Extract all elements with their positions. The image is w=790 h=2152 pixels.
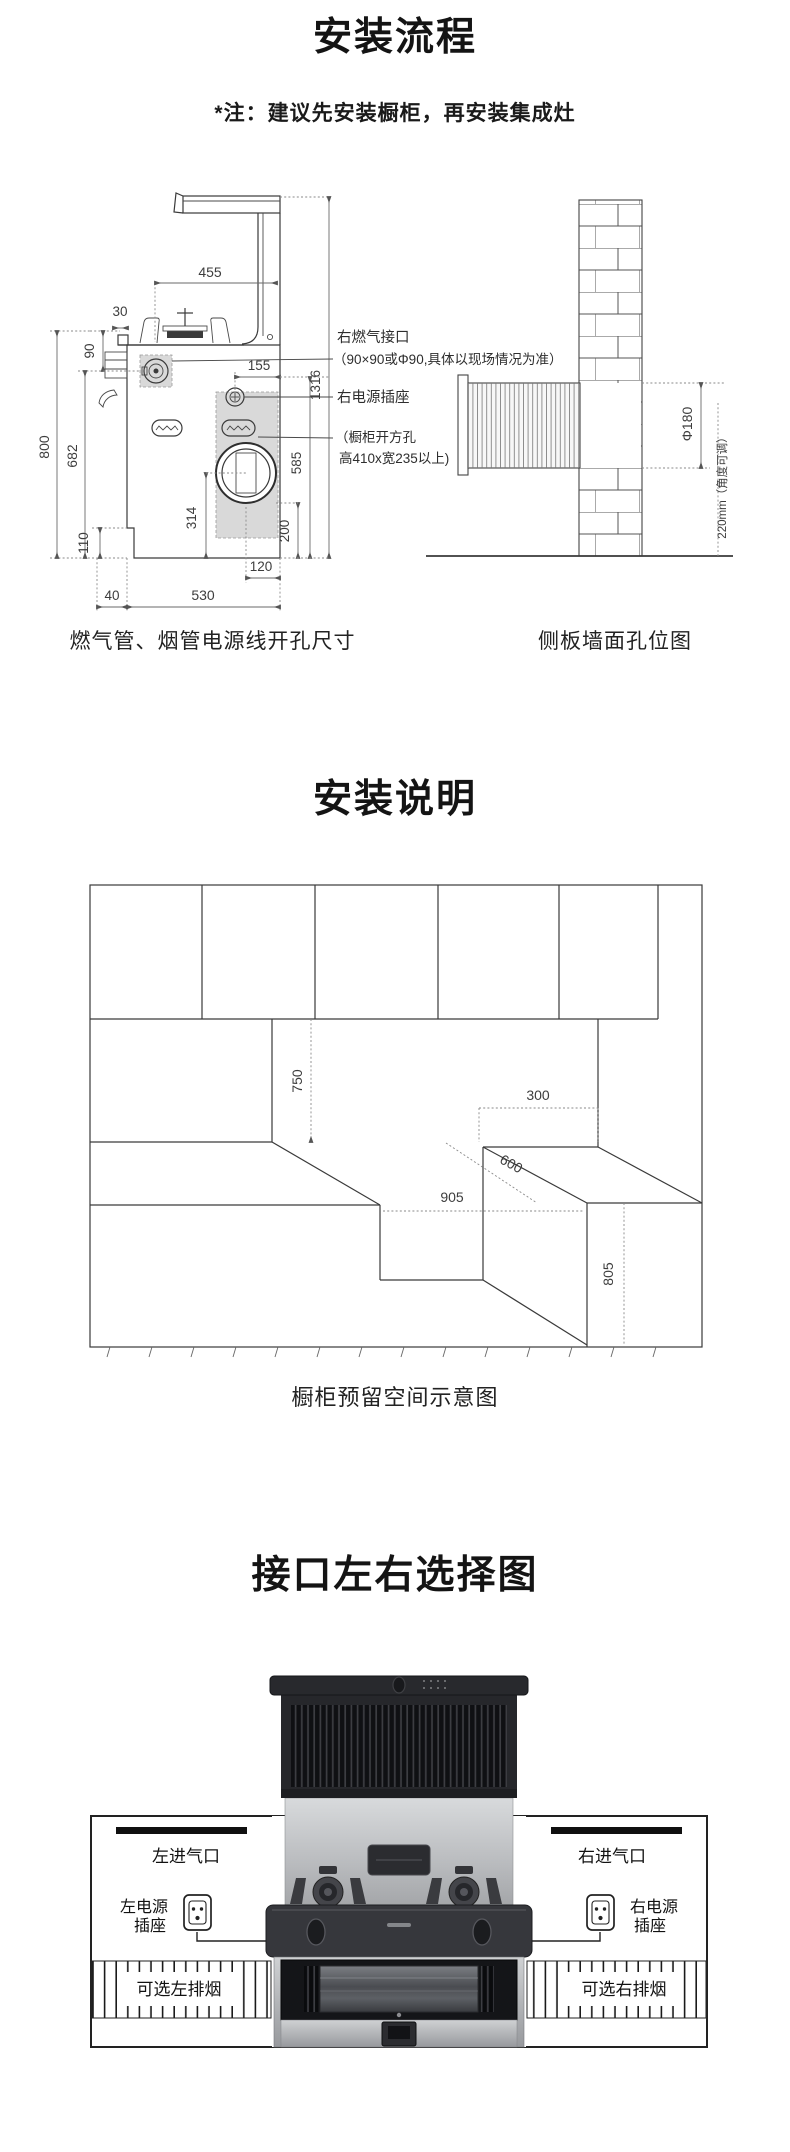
dim-800: 800 — [36, 435, 52, 459]
oven-window — [320, 1966, 478, 2012]
left-power-label-2: 插座 — [134, 1917, 166, 1935]
dim-455: 455 — [198, 264, 222, 280]
gas-inlet — [140, 355, 172, 387]
dim-750: 750 — [289, 1069, 305, 1093]
section-title-install-process: 安装流程 — [0, 6, 790, 62]
right-power-label-1: 右电源 — [630, 1898, 678, 1916]
dim-155: 155 — [248, 358, 271, 373]
flexible-duct — [458, 375, 580, 475]
manual-page: 安装流程 *注：建议先安装橱柜，再安装集成灶 — [0, 0, 790, 2152]
service-panel — [216, 388, 278, 538]
dim-220mm: 220mm（角度可调） — [715, 431, 729, 538]
left-exhaust-label: 可选左排烟 — [137, 1980, 222, 1999]
floor-ticks — [107, 1347, 656, 1357]
callout-power-socket: 右电源插座 — [337, 389, 410, 406]
caption-cabinet-space: 橱柜预留空间示意图 — [0, 1380, 790, 1412]
callout-cabinet-cutout-1: （橱柜开方孔 — [335, 430, 416, 445]
cabinet-dimension-lines — [311, 1019, 624, 1345]
right-knob — [473, 1919, 491, 1945]
fig-cabinet-space: 750 300 600 905 805 — [85, 880, 710, 1370]
dim-phi180: Φ180 — [679, 407, 695, 442]
oven-front — [274, 1957, 524, 2047]
dim-805: 805 — [600, 1262, 616, 1286]
dim-120: 120 — [250, 559, 273, 574]
install-note: *注：建议先安装橱柜，再安装集成灶 — [0, 97, 790, 127]
left-socket-icon — [184, 1895, 211, 1930]
dim-40: 40 — [104, 588, 119, 603]
vent-left — [152, 420, 182, 436]
right-duct-bar — [551, 1827, 682, 1834]
right-exhaust-band: 可选右排烟 — [527, 1961, 706, 2018]
caption-cutout-dimensions: 燃气管、烟管电源线开孔尺寸 — [30, 625, 395, 655]
dim-1316: 1316 — [308, 370, 323, 400]
left-duct-bar — [116, 1827, 247, 1834]
left-inlet-label: 左进气口 — [152, 1847, 220, 1866]
caption-wall-hole: 侧板墙面孔位图 — [445, 625, 785, 655]
integrated-stove-image — [266, 1676, 532, 2047]
hood-outline — [174, 193, 329, 345]
dim-585: 585 — [289, 452, 304, 475]
left-exhaust-band: 可选左排烟 — [92, 1961, 271, 2018]
dim-300: 300 — [526, 1087, 550, 1103]
section-title-install-instructions: 安装说明 — [0, 768, 790, 824]
section-title-interface-selection: 接口左右选择图 — [0, 1544, 790, 1600]
dim-90: 90 — [82, 343, 97, 358]
left-knob — [307, 1919, 325, 1945]
dim-600: 600 — [497, 1151, 525, 1176]
dim-200: 200 — [277, 520, 292, 543]
dimension-lines — [50, 197, 329, 612]
right-inlet-label: 右进气口 — [578, 1847, 646, 1866]
cooktop-outline — [118, 308, 244, 345]
right-exhaust-label: 可选右排烟 — [582, 1980, 667, 1999]
hood-camera — [393, 1677, 405, 1693]
callout-gas-interface: 右燃气接口 — [337, 328, 410, 346]
fig-interface-selection: 左进气口 右进气口 左电源 插座 右电源 插座 可选左排烟 — [88, 1660, 710, 2052]
right-socket-icon — [587, 1895, 614, 1930]
dim-905: 905 — [440, 1189, 464, 1205]
dim-30: 30 — [112, 304, 127, 319]
brand-logo — [387, 1923, 411, 1927]
right-power-label-2: 插座 — [634, 1917, 666, 1935]
brick-wall — [579, 200, 642, 556]
hood-control-bar — [270, 1676, 528, 1695]
fig-wall-hole: Φ180 220mm（角度可调） — [420, 160, 760, 565]
dim-682: 682 — [64, 444, 80, 468]
left-power-label-1: 左电源 — [120, 1898, 168, 1916]
cooktop-band — [266, 1905, 532, 1957]
dim-314: 314 — [184, 506, 199, 529]
dim-110: 110 — [76, 532, 91, 554]
flue-hole — [216, 443, 276, 503]
dim-530: 530 — [191, 587, 215, 603]
